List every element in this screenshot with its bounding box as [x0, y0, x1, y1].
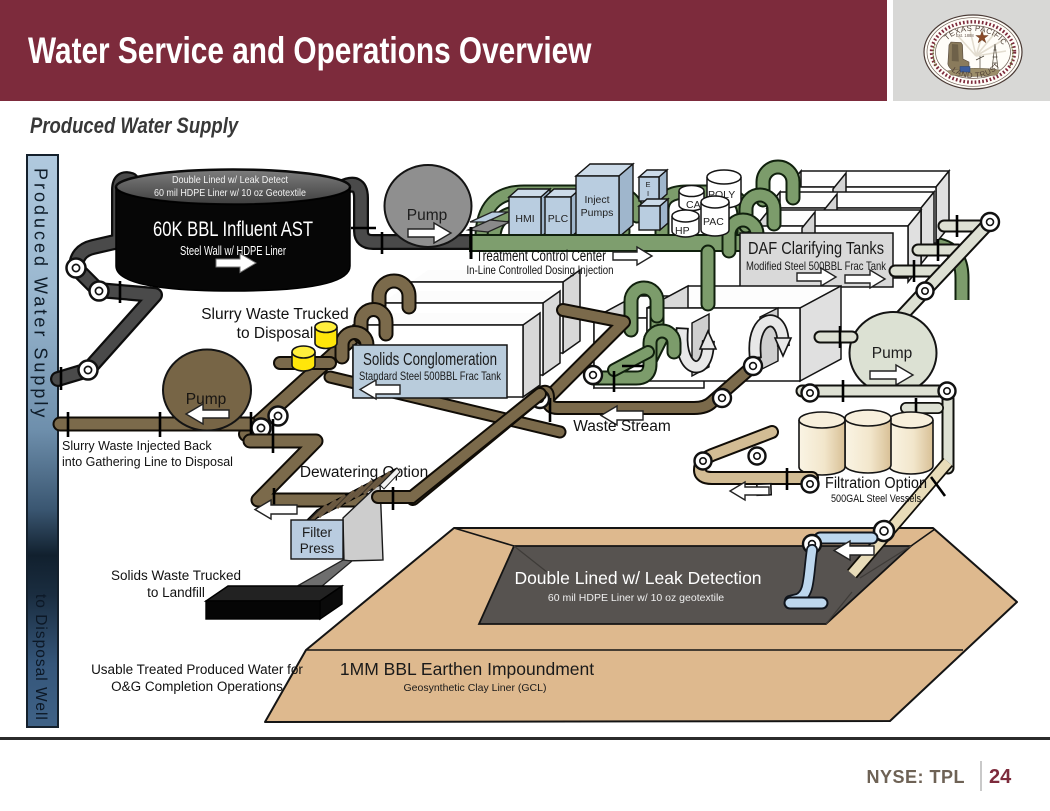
svg-text:Solids Conglomeration: Solids Conglomeration — [363, 349, 497, 369]
svg-text:In-Line Controlled Dosing Inje: In-Line Controlled Dosing Injection — [467, 263, 614, 277]
svg-text:Modified Steel 500BBL Frac Tan: Modified Steel 500BBL Frac Tank — [746, 259, 887, 273]
svg-text:Pump: Pump — [872, 345, 913, 362]
svg-text:Steel Wall w/ HDPE Liner: Steel Wall w/ HDPE Liner — [180, 244, 286, 258]
svg-text:Double Lined w/ Leak Detection: Double Lined w/ Leak Detection — [514, 568, 761, 588]
svg-text:Filter: Filter — [302, 525, 333, 540]
svg-text:PAC: PAC — [703, 216, 724, 228]
svg-text:Standard Steel 500BBL Frac Tan: Standard Steel 500BBL Frac Tank — [359, 369, 502, 383]
svg-text:1MM BBL Earthen Impoundment: 1MM BBL Earthen Impoundment — [340, 659, 594, 679]
svg-text:Produced Water Supply: Produced Water Supply — [31, 168, 51, 420]
svg-text:Slurry Waste Injected Back: Slurry Waste Injected Back — [62, 439, 212, 453]
svg-text:60K BBL Influent AST: 60K BBL Influent AST — [153, 218, 313, 241]
svg-text:Inject: Inject — [584, 194, 609, 206]
svg-text:HMI: HMI — [515, 213, 534, 225]
svg-text:DAF Clarifying Tanks: DAF Clarifying Tanks — [748, 238, 884, 258]
svg-text:Filtration Option: Filtration Option — [825, 475, 927, 492]
svg-text:Waste Stream: Waste Stream — [573, 418, 671, 435]
svg-text:Pumps: Pumps — [581, 207, 614, 219]
svg-text:Press: Press — [300, 541, 335, 556]
svg-text:Solids Waste Trucked: Solids Waste Trucked — [111, 568, 241, 583]
svg-text:E: E — [645, 180, 650, 189]
svg-text:Geosynthetic Clay Liner (GCL): Geosynthetic Clay Liner (GCL) — [404, 682, 547, 694]
svg-text:I: I — [647, 189, 649, 198]
svg-text:500GAL Steel Vessels: 500GAL Steel Vessels — [831, 493, 921, 505]
svg-text:CA: CA — [686, 199, 701, 211]
svg-text:Pump: Pump — [186, 391, 227, 408]
svg-text:Usable Treated Produced Water: Usable Treated Produced Water for — [91, 662, 303, 677]
svg-text:Double Lined w/ Leak Detect: Double Lined w/ Leak Detect — [172, 174, 288, 186]
svg-text:HP: HP — [675, 225, 690, 237]
svg-text:60 mil HDPE Liner w/ 10 oz Geo: 60 mil HDPE Liner w/ 10 oz Geotextile — [154, 187, 306, 199]
svg-text:to Landfill: to Landfill — [147, 585, 205, 600]
svg-text:into Gathering Line to Disposa: into Gathering Line to Disposal — [62, 455, 233, 469]
svg-text:Pump: Pump — [407, 207, 448, 224]
svg-text:60 mil HDPE Liner w/ 10 oz geo: 60 mil HDPE Liner w/ 10 oz geotextile — [548, 592, 724, 604]
svg-text:Dewatering Option: Dewatering Option — [300, 464, 428, 481]
svg-text:O&G Completion Operations: O&G Completion Operations — [111, 679, 283, 694]
svg-text:to Disposal: to Disposal — [237, 325, 314, 342]
svg-text:PLC: PLC — [548, 213, 569, 225]
svg-text:Slurry Waste Trucked: Slurry Waste Trucked — [201, 306, 349, 323]
svg-text:to Disposal Well: to Disposal Well — [32, 594, 49, 721]
